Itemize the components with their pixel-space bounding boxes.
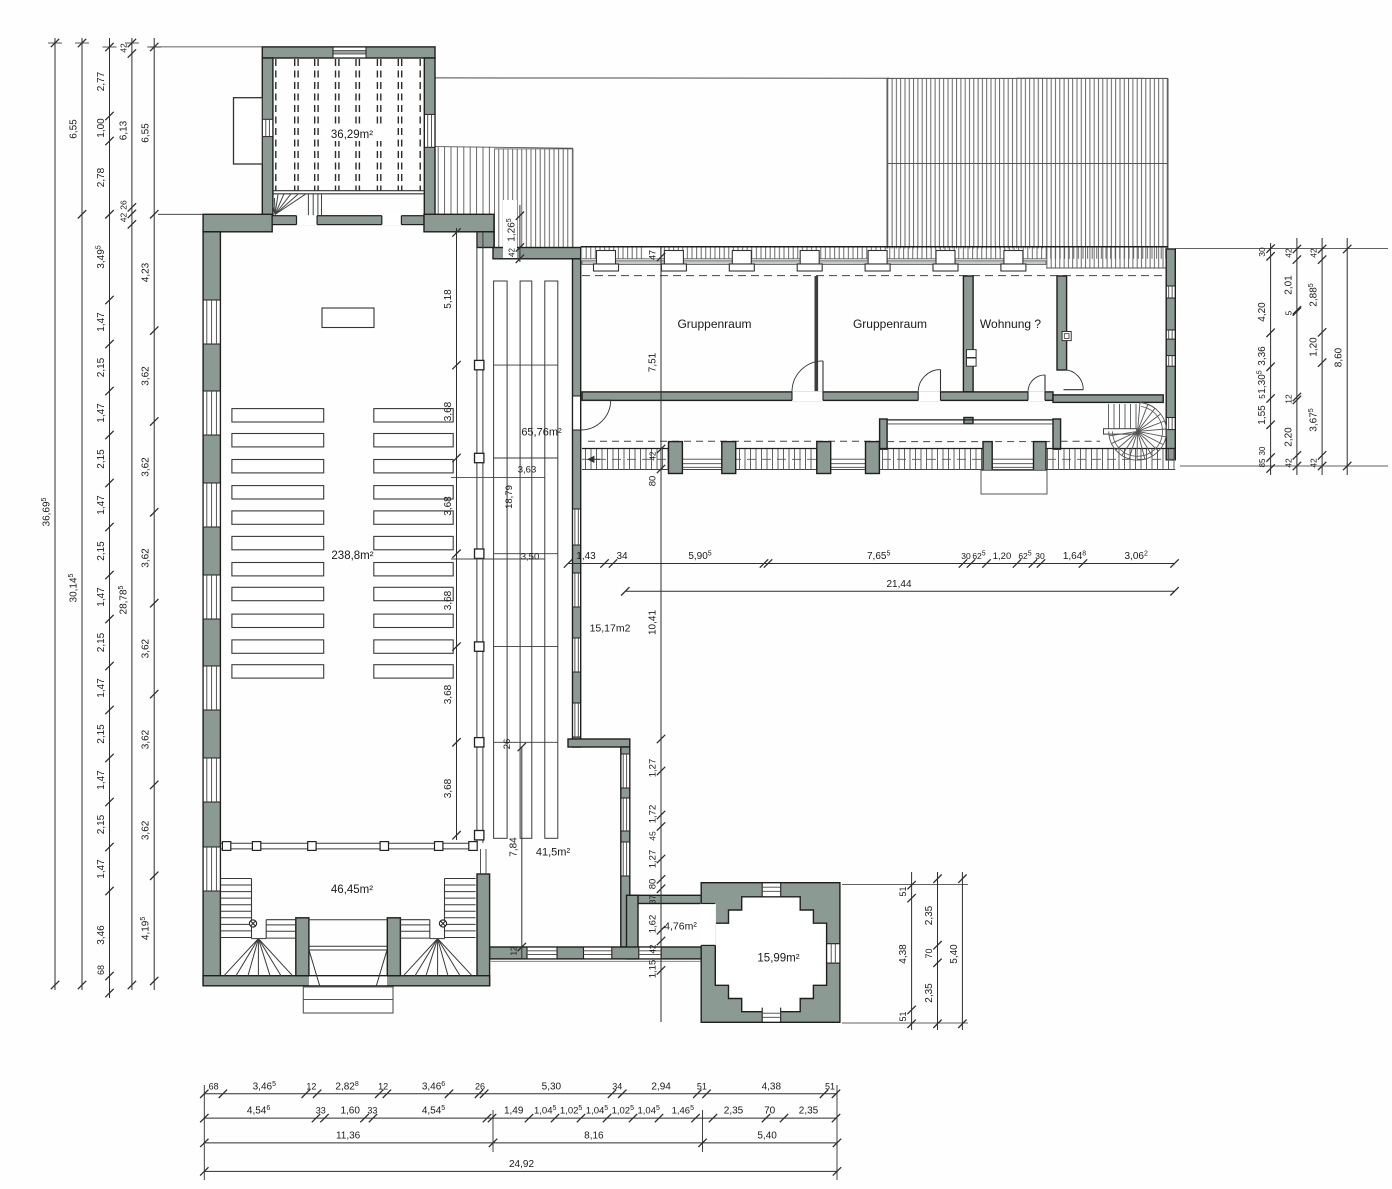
svg-text:1,47: 1,47 [96, 770, 107, 790]
svg-text:1,47: 1,47 [96, 495, 107, 515]
svg-text:Gruppenraum: Gruppenraum [677, 317, 751, 331]
svg-text:1,47: 1,47 [96, 587, 107, 607]
svg-text:3,36: 3,36 [1257, 346, 1268, 366]
svg-text:2,35: 2,35 [724, 1106, 744, 1117]
svg-text:3,46: 3,46 [96, 925, 107, 945]
svg-text:36,695: 36,695 [41, 497, 53, 526]
svg-text:4,23: 4,23 [141, 262, 152, 282]
svg-text:12: 12 [509, 946, 518, 955]
svg-text:2,35: 2,35 [799, 1106, 819, 1117]
svg-text:4,38: 4,38 [762, 1081, 782, 1092]
svg-text:30: 30 [961, 551, 971, 561]
svg-text:2,78: 2,78 [96, 167, 107, 187]
svg-text:51: 51 [825, 1081, 835, 1091]
svg-text:5,40: 5,40 [757, 1130, 777, 1141]
svg-text:70: 70 [924, 948, 934, 958]
svg-text:1,00: 1,00 [96, 118, 107, 138]
svg-text:1,55: 1,55 [1257, 405, 1268, 425]
svg-text:2,15: 2,15 [96, 632, 107, 652]
svg-text:3,62: 3,62 [141, 820, 152, 840]
svg-text:45: 45 [648, 831, 658, 841]
svg-text:3,63: 3,63 [518, 465, 537, 476]
svg-text:1,27: 1,27 [648, 850, 659, 869]
svg-text:5: 5 [1258, 394, 1267, 399]
svg-text:12: 12 [1283, 394, 1293, 404]
svg-text:68: 68 [209, 1081, 219, 1091]
svg-text:1,60: 1,60 [340, 1106, 360, 1117]
svg-text:37: 37 [649, 895, 658, 904]
svg-text:42: 42 [507, 248, 516, 257]
svg-text:2,77: 2,77 [96, 71, 107, 91]
svg-text:12: 12 [306, 1081, 316, 1091]
svg-text:4,38: 4,38 [898, 944, 909, 964]
svg-text:5,30: 5,30 [542, 1081, 562, 1092]
svg-text:5: 5 [1284, 310, 1293, 315]
svg-text:11,36: 11,36 [336, 1130, 361, 1141]
svg-text:1,72: 1,72 [648, 805, 659, 824]
svg-text:42: 42 [1283, 248, 1293, 258]
svg-text:68: 68 [96, 965, 106, 975]
svg-text:1,20: 1,20 [1309, 337, 1320, 357]
svg-text:2,15: 2,15 [96, 724, 107, 744]
svg-text:42: 42 [649, 944, 658, 953]
svg-text:1,47: 1,47 [96, 312, 107, 332]
svg-text:33: 33 [316, 1106, 326, 1116]
svg-text:1,49: 1,49 [504, 1106, 524, 1117]
svg-text:238,8m²: 238,8m² [331, 550, 373, 562]
svg-text:2,94: 2,94 [651, 1081, 671, 1092]
svg-text:3,68: 3,68 [443, 778, 454, 798]
svg-text:2,35: 2,35 [924, 905, 935, 925]
svg-text:3,68: 3,68 [443, 496, 454, 516]
svg-text:42: 42 [649, 451, 658, 460]
svg-text:21,44: 21,44 [886, 579, 911, 590]
svg-text:Gruppenraum: Gruppenraum [853, 317, 927, 331]
svg-text:12: 12 [378, 1081, 388, 1091]
svg-text:42: 42 [118, 213, 128, 223]
svg-text:1,47: 1,47 [96, 859, 107, 879]
svg-text:3,62: 3,62 [141, 366, 152, 386]
svg-text:47: 47 [648, 250, 658, 260]
svg-text:8,16: 8,16 [584, 1130, 604, 1141]
svg-text:10,41: 10,41 [648, 610, 659, 635]
svg-text:1,20: 1,20 [993, 551, 1012, 562]
svg-text:34: 34 [616, 551, 628, 562]
svg-text:1,62: 1,62 [648, 915, 659, 934]
svg-text:80: 80 [648, 879, 659, 890]
svg-text:26: 26 [475, 1081, 485, 1091]
svg-text:1,47: 1,47 [96, 403, 107, 423]
svg-text:6,55: 6,55 [141, 123, 152, 143]
svg-text:51: 51 [697, 1081, 707, 1091]
svg-text:7,84: 7,84 [508, 837, 519, 857]
svg-text:5,40: 5,40 [949, 944, 960, 964]
svg-text:1,15: 1,15 [648, 960, 659, 979]
svg-text:26: 26 [502, 739, 513, 750]
svg-text:36,29m²: 36,29m² [331, 129, 373, 141]
svg-text:2,15: 2,15 [96, 357, 107, 377]
svg-text:30,145: 30,145 [68, 573, 80, 602]
svg-text:6,13: 6,13 [118, 120, 129, 140]
svg-text:65,76m²: 65,76m² [521, 427, 562, 439]
svg-text:30: 30 [1258, 446, 1267, 455]
svg-text:34: 34 [612, 1081, 622, 1091]
svg-text:2,15: 2,15 [96, 814, 107, 834]
svg-text:42: 42 [1309, 248, 1319, 258]
svg-text:2,20: 2,20 [1283, 427, 1294, 447]
svg-text:2,01: 2,01 [1283, 275, 1294, 295]
svg-text:24,92: 24,92 [509, 1159, 534, 1170]
svg-text:6,55: 6,55 [69, 119, 80, 139]
svg-text:2,35: 2,35 [924, 983, 935, 1003]
svg-text:46,45m²: 46,45m² [331, 884, 373, 896]
svg-text:5,18: 5,18 [443, 289, 454, 309]
svg-text:1,43: 1,43 [576, 551, 596, 562]
svg-text:28,785: 28,785 [118, 585, 129, 614]
svg-text:51: 51 [898, 1011, 908, 1021]
svg-text:33: 33 [367, 1106, 377, 1116]
svg-text:7,51: 7,51 [648, 352, 659, 372]
svg-text:Wohnung ?: Wohnung ? [980, 317, 1041, 331]
svg-text:3,68: 3,68 [443, 590, 454, 610]
svg-text:51: 51 [898, 886, 908, 896]
svg-text:8,60: 8,60 [1334, 347, 1345, 367]
svg-text:18,79: 18,79 [504, 485, 515, 509]
svg-text:26: 26 [118, 200, 128, 210]
svg-text:3,62: 3,62 [141, 638, 152, 658]
svg-text:2,15: 2,15 [96, 541, 107, 561]
svg-text:3,62: 3,62 [141, 548, 152, 568]
svg-text:1,47: 1,47 [96, 678, 107, 698]
svg-text:70: 70 [764, 1106, 776, 1117]
svg-text:2,15: 2,15 [96, 449, 107, 469]
svg-text:15,99m²: 15,99m² [757, 953, 799, 965]
svg-text:3,68: 3,68 [443, 684, 454, 704]
svg-text:15,17m2: 15,17m2 [590, 623, 631, 635]
svg-text:3,50: 3,50 [521, 552, 540, 563]
svg-text:3,62: 3,62 [141, 457, 152, 477]
svg-text:42: 42 [118, 43, 128, 53]
svg-text:4,20: 4,20 [1257, 302, 1268, 322]
svg-text:41,5m²: 41,5m² [536, 847, 571, 859]
svg-text:80: 80 [648, 476, 659, 487]
svg-text:3,68: 3,68 [443, 401, 454, 421]
svg-text:4,76m²: 4,76m² [664, 921, 697, 933]
svg-text:30: 30 [1035, 551, 1045, 561]
svg-text:3,62: 3,62 [141, 729, 152, 749]
svg-text:1,27: 1,27 [648, 759, 659, 778]
